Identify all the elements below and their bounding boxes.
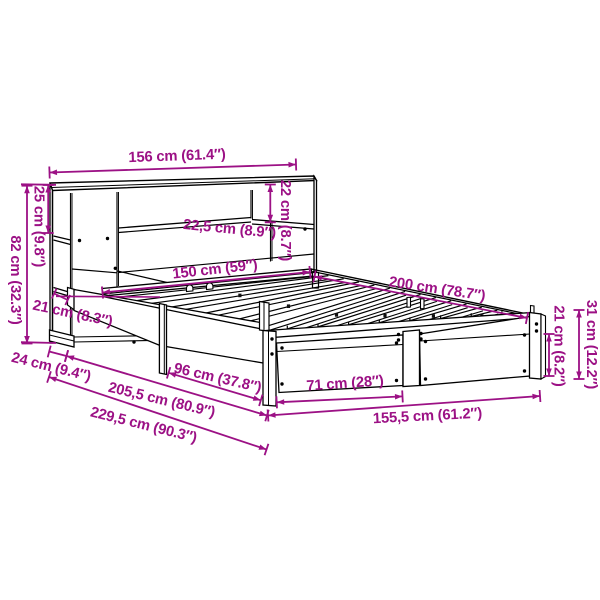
- svg-text:21 cm (8.2″): 21 cm (8.2″): [551, 305, 567, 386]
- svg-text:82 cm (32.3″): 82 cm (32.3″): [7, 235, 23, 324]
- svg-text:31 cm (12.2″): 31 cm (12.2″): [583, 300, 599, 389]
- svg-text:156 cm (61.4″): 156 cm (61.4″): [128, 147, 226, 166]
- svg-text:25 cm (9.8″): 25 cm (9.8″): [31, 186, 47, 267]
- svg-text:22 cm (8.7″): 22 cm (8.7″): [277, 180, 293, 261]
